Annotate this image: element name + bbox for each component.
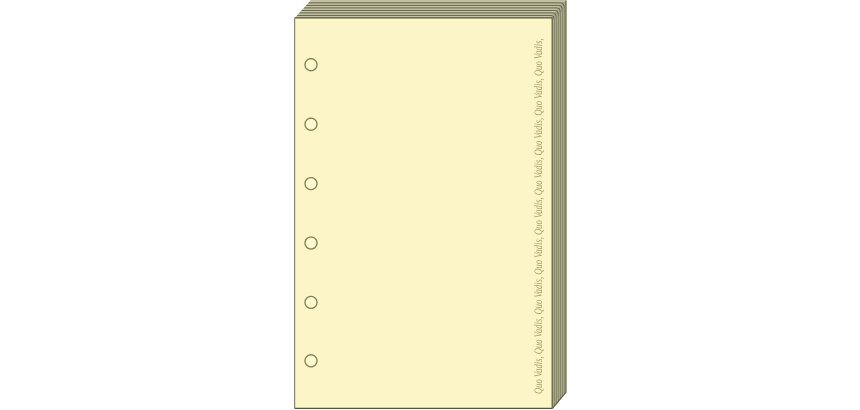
svg-text:Quo Vadis, Quo Vadis, Quo Vadi: Quo Vadis, Quo Vadis, Quo Vadis, Quo Vad…	[533, 38, 546, 394]
